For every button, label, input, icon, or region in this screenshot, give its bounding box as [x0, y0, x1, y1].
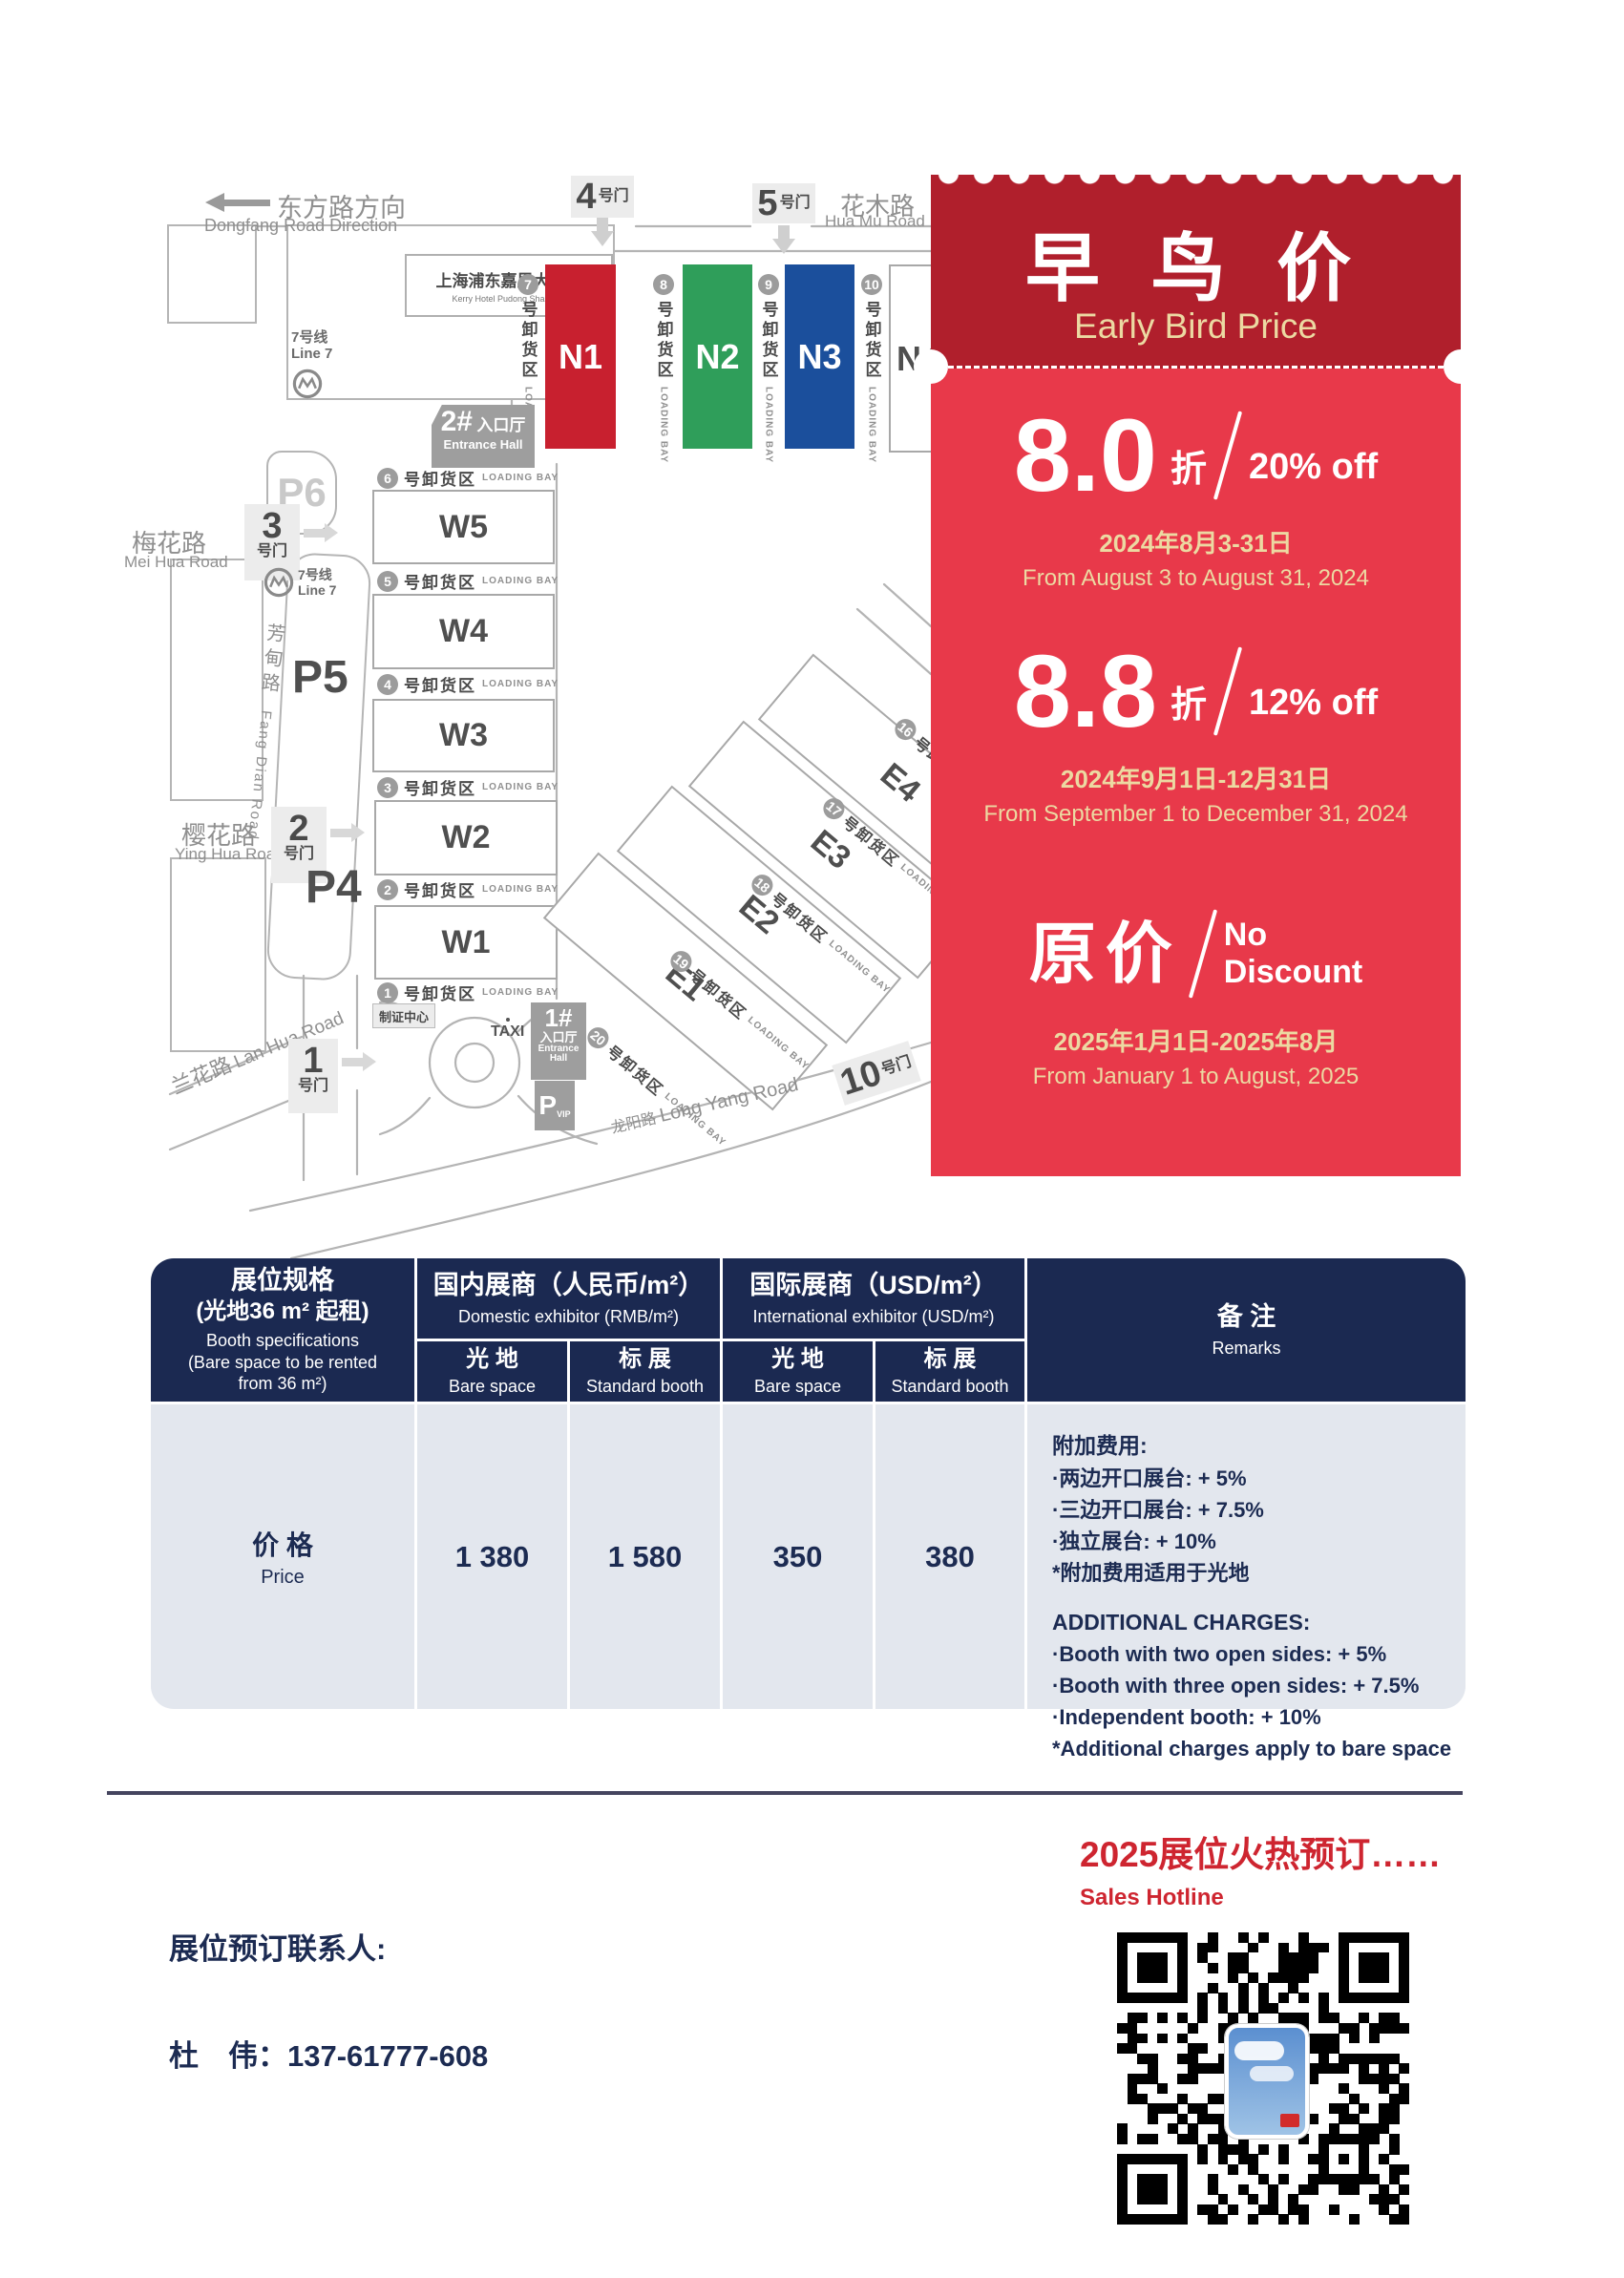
bay-4-en: LOADING BAY: [482, 679, 559, 689]
metro-logo-icon: [264, 567, 294, 598]
hall-n3-label: N3: [797, 337, 841, 377]
slash-icon: [1189, 909, 1217, 998]
tier-3: 原价 No Discount 2025年1月1日-2025年8月 From Ja…: [931, 908, 1461, 1090]
remarks-cn-item: ·两边开口展台: + 5%: [1052, 1463, 1466, 1494]
gate-1: 1 号门: [288, 1039, 338, 1113]
meihua-road-en: Mei Hua Road: [124, 553, 228, 572]
hall-n2: N2: [683, 264, 752, 449]
std-cn: 标 展: [924, 1345, 977, 1374]
hall-n2-label: N2: [695, 337, 739, 377]
gate-3-arrow-icon: [304, 523, 338, 542]
bay-1-cn: 号卸货区: [404, 981, 476, 1004]
header-booth-spec: 展位规格 (光地36 m² 起租) Booth specifications (…: [151, 1258, 414, 1402]
gate-2-suffix: 号门: [271, 847, 327, 862]
remarks-en-title: ADDITIONAL CHARGES:: [1052, 1606, 1466, 1639]
value-domestic-std: 1 580: [570, 1404, 720, 1709]
value-domestic-bare: 1 380: [417, 1404, 567, 1709]
std-en: Standard booth: [586, 1376, 704, 1398]
price-intl-std: 380: [875, 1404, 1024, 1709]
gate-5: 5 号门: [752, 183, 815, 223]
dongfang-arrow-icon: [205, 193, 270, 212]
yinghua-road-en: Ying Hua Road: [175, 845, 285, 864]
bay-5-number: 5: [377, 571, 398, 592]
vip-p: P: [538, 1091, 557, 1119]
remarks-en-item: ·Booth with three open sides: + 7.5%: [1052, 1670, 1466, 1701]
bay-5-cn: 号卸货区: [404, 569, 476, 593]
bay-3-cn: 号卸货区: [404, 775, 476, 799]
huamu-road-en: Hua Mu Road: [825, 212, 925, 231]
bay-1-en: LOADING BAY: [482, 987, 559, 998]
bare-cn: 光 地: [771, 1345, 824, 1374]
metro-line7-left: 7号线 Line 7: [298, 567, 336, 598]
hall-w2: W2: [374, 800, 558, 875]
city-block: [167, 224, 257, 324]
gate-5-arrow-icon: [772, 225, 795, 254]
gate-5-number: 5: [757, 185, 777, 221]
gate-5-suffix: 号门: [780, 196, 811, 211]
loading-bay-4: 4 号卸货区 LOADING BAY: [377, 672, 559, 696]
hall-w3: W3: [372, 699, 555, 772]
no-discount-line1: No: [1224, 917, 1267, 953]
metro-cn: 7号线: [298, 567, 332, 582]
stamp-edge-top: [931, 174, 1461, 186]
metro-en: Line 7: [291, 346, 332, 362]
entrance-2-en: Entrance Hall: [443, 437, 522, 452]
hall-n1-label: N1: [559, 337, 602, 377]
std-cn: 标 展: [619, 1345, 671, 1374]
entrance-hall-2: 2# 入口厅 Entrance Hall: [432, 405, 535, 468]
header-bare-intl: 光 地 Bare space: [723, 1341, 873, 1402]
entrance-1-en: Entrance Hall: [531, 1044, 586, 1065]
gate-4-suffix: 号门: [599, 189, 629, 204]
loading-bay-5: 5 号卸货区 LOADING BAY: [377, 569, 559, 593]
bay-7-number: 7: [517, 274, 538, 295]
loading-bay-10: 10 号卸货区 LOADING BAY: [857, 274, 886, 463]
loading-bay-1: 1 号卸货区 LOADING BAY: [377, 981, 559, 1004]
hall-n3: N3: [785, 264, 854, 449]
taxi-dot: [506, 1018, 510, 1022]
tier-1-percent: 20% off: [1249, 447, 1378, 488]
spec-cn1: 展位规格: [231, 1265, 334, 1297]
entrance-hall-1: 1# 入口厅 Entrance Hall: [531, 1002, 586, 1080]
tier-3-label: 原价: [1029, 920, 1182, 987]
badge-center-label: 制证中心: [379, 1007, 429, 1025]
bare-cn: 光 地: [466, 1345, 518, 1374]
early-bird-panel: 早 鸟 价 Early Bird Price 8.0 折 20% off 202…: [931, 175, 1461, 1176]
remarks-en: Remarks: [1212, 1338, 1280, 1360]
remarks-en-item: ·Booth with two open sides: + 5%: [1052, 1638, 1466, 1670]
domestic-cn: 国内展商（人民币/m²）: [433, 1270, 705, 1302]
tier-2-date-en: From September 1 to December 31, 2024: [931, 801, 1461, 828]
bay-10-number: 10: [861, 274, 882, 295]
vip-parking: P VIP: [535, 1081, 575, 1130]
hall-e4-label: E4: [874, 756, 928, 811]
hall-w4-label: W4: [439, 613, 488, 650]
hall-w5: W5: [372, 490, 555, 564]
badge-center: 制证中心: [372, 1003, 435, 1028]
remarks-en-item: *Additional charges apply to bare space: [1052, 1733, 1466, 1764]
bay-9-en: LOADING BAY: [764, 387, 774, 463]
intl-en: International exhibitor (USD/m²): [752, 1306, 994, 1328]
bare-en: Bare space: [449, 1376, 536, 1398]
hall-w2-label: W2: [442, 819, 491, 856]
gate-1-arrow-icon: [342, 1052, 376, 1071]
loading-bay-2: 2 号卸货区 LOADING BAY: [377, 877, 559, 901]
parking-p5-label: P5: [292, 651, 348, 704]
metro-logo-icon: [292, 369, 323, 399]
bay-2-cn: 号卸货区: [404, 877, 476, 901]
gate-3-number: 3: [244, 508, 300, 544]
header-remarks: 备 注 Remarks: [1027, 1258, 1466, 1402]
bay-8-en: LOADING BAY: [659, 387, 669, 463]
hall-w4: W4: [372, 594, 555, 669]
early-bird-title-en: Early Bird Price: [931, 306, 1461, 347]
tier-1-date-cn: 2024年8月3-31日: [931, 524, 1461, 559]
dongfang-road-en: Dongfang Road Direction: [204, 216, 397, 236]
tier-1-discount: 8.0: [1014, 409, 1157, 501]
std-en: Standard booth: [891, 1376, 1008, 1398]
hall-w3-label: W3: [439, 717, 488, 754]
remarks-cn-item: ·独立展台: + 10%: [1052, 1526, 1466, 1557]
gate-10-number: 10: [836, 1055, 886, 1102]
price-en: Price: [261, 1567, 305, 1589]
bay-8-number: 8: [653, 274, 674, 295]
city-block: [170, 857, 266, 1052]
entrance-1-cn: 入口厅: [531, 1031, 586, 1044]
price-cn: 价 格: [252, 1525, 313, 1563]
gate-2-arrow-icon: [330, 823, 365, 842]
value-intl-std: 380: [875, 1404, 1024, 1709]
hall-w1-label: W1: [442, 924, 491, 961]
header-std-domestic: 标 展 Standard booth: [570, 1341, 720, 1402]
bay-4-number: 4: [377, 674, 398, 695]
tier-1: 8.0 折 20% off 2024年8月3-31日 From August 3…: [931, 409, 1461, 592]
bay-9-cn: 号卸货区: [757, 301, 781, 381]
tier-2-percent: 12% off: [1249, 683, 1378, 724]
gate-3-suffix: 号门: [244, 544, 300, 559]
remarks-cn-title: 附加费用:: [1052, 1429, 1466, 1463]
entrance-2-cn: 入口厅: [476, 416, 525, 434]
bay-2-number: 2: [377, 879, 398, 900]
loading-bay-9: 9 号卸货区 LOADING BAY: [754, 274, 783, 463]
header-domestic: 国内展商（人民币/m²） Domestic exhibitor (RMB/m²): [417, 1258, 720, 1339]
entrance-1-number: 1#: [545, 1003, 573, 1032]
bay-6-en: LOADING BAY: [482, 473, 559, 483]
remarks-cn: 备 注: [1217, 1301, 1276, 1334]
ticket-notch-left: [914, 349, 948, 384]
header-std-intl: 标 展 Standard booth: [875, 1341, 1024, 1402]
taxi-label: TAXI: [491, 1023, 524, 1041]
fangdian-cn: 芳甸路: [257, 622, 285, 698]
tier-2-date-cn: 2024年9月1日-12月31日: [931, 760, 1461, 795]
tier-3-date-en: From January 1 to August, 2025: [931, 1064, 1461, 1090]
price-table: 展位规格 (光地36 m² 起租) Booth specifications (…: [151, 1258, 1466, 1709]
domestic-en: Domestic exhibitor (RMB/m²): [458, 1306, 679, 1328]
intl-cn: 国际展商（USD/m²）: [749, 1270, 998, 1302]
bay-5-en: LOADING BAY: [482, 576, 559, 586]
spec-cn2: (光地36 m² 起租): [196, 1297, 369, 1326]
value-intl-bare: 350: [723, 1404, 873, 1709]
bare-en: Bare space: [754, 1376, 841, 1398]
spec-en1: Booth specifications: [206, 1330, 359, 1352]
header-international: 国际展商（USD/m²） International exhibitor (US…: [723, 1258, 1024, 1339]
hall-w1: W1: [374, 905, 558, 980]
bay-6-number: 6: [377, 468, 398, 489]
metro-cn: 7号线: [291, 329, 327, 346]
metro-en: Line 7: [298, 582, 336, 598]
bay-7-cn: 号卸货区: [517, 301, 540, 381]
tier-2: 8.8 折 12% off 2024年9月1日-12月31日 From Sept…: [931, 644, 1461, 828]
ticket-notch-right: [1444, 349, 1478, 384]
loading-bay-6: 6 号卸货区 LOADING BAY: [377, 466, 559, 490]
bay-6-cn: 号卸货区: [404, 466, 476, 490]
body-price-label: 价 格 Price: [151, 1404, 414, 1709]
gate-1-number: 1: [288, 1043, 338, 1079]
metro-line7-top: 7号线 Line 7: [291, 330, 332, 362]
tier-3-percent: No Discount: [1224, 917, 1362, 991]
bay-3-number: 3: [377, 777, 398, 798]
gate-4-arrow-icon: [591, 218, 614, 246]
flyer-page: { "map": { "direction_cn": "东方路方向", "dir…: [0, 0, 1624, 2278]
tier-1-unit: 折: [1171, 439, 1207, 492]
bay-10-en: LOADING BAY: [867, 387, 877, 463]
tier-3-date-cn: 2025年1月1日-2025年8月: [931, 1023, 1461, 1058]
gate-10-suffix: 号门: [879, 1055, 913, 1079]
bay-1-number: 1: [377, 982, 398, 1003]
remarks-cell: 附加费用: ·两边开口展台: + 5% ·三边开口展台: + 7.5% ·独立展…: [1027, 1404, 1466, 1709]
tier-2-unit: 折: [1171, 675, 1207, 728]
price-domestic-bare: 1 380: [417, 1404, 567, 1709]
bay-2-en: LOADING BAY: [482, 884, 559, 895]
early-bird-title-cn: 早 鸟 价: [931, 209, 1461, 316]
no-discount-line2: Discount: [1224, 954, 1362, 990]
slash-icon: [1213, 411, 1242, 499]
bay-3-en: LOADING BAY: [482, 782, 559, 792]
header-bare-domestic: 光 地 Bare space: [417, 1341, 567, 1402]
vip-sub: VIP: [557, 1110, 571, 1119]
remarks-cn-item: *附加费用适用于光地: [1052, 1557, 1466, 1589]
bay-9-number: 9: [758, 274, 779, 295]
bay-8-cn: 号卸货区: [652, 301, 676, 381]
gate-2-number: 2: [271, 811, 327, 847]
gate-4: 4 号门: [571, 176, 634, 218]
bay-10-cn: 号卸货区: [860, 301, 884, 381]
price-domestic-std: 1 580: [570, 1404, 720, 1709]
loading-bay-3: 3 号卸货区 LOADING BAY: [377, 775, 559, 799]
spec-en2: (Bare space to be rented from 36 m²): [173, 1352, 392, 1395]
remarks-en-item: ·Independent booth: + 10%: [1052, 1701, 1466, 1733]
gate-4-number: 4: [576, 179, 596, 215]
tier-1-date-en: From August 3 to August 31, 2024: [931, 565, 1461, 592]
remarks-cn-item: ·三边开口展台: + 7.5%: [1052, 1494, 1466, 1526]
gate-1-suffix: 号门: [288, 1079, 338, 1094]
entrance-2-number: 2#: [441, 406, 473, 437]
tier-2-discount: 8.8: [1014, 644, 1157, 737]
loading-bay-8: 8 号卸货区 LOADING BAY: [649, 274, 678, 463]
slash-icon: [1213, 646, 1242, 735]
hall-n1: N1: [545, 264, 616, 449]
hall-w5-label: W5: [439, 509, 488, 546]
parking-p4-label: P4: [306, 861, 362, 914]
bay-4-cn: 号卸货区: [404, 672, 476, 696]
price-intl-bare: 350: [723, 1404, 873, 1709]
stamp-edge-bottom: [931, 1165, 1461, 1177]
